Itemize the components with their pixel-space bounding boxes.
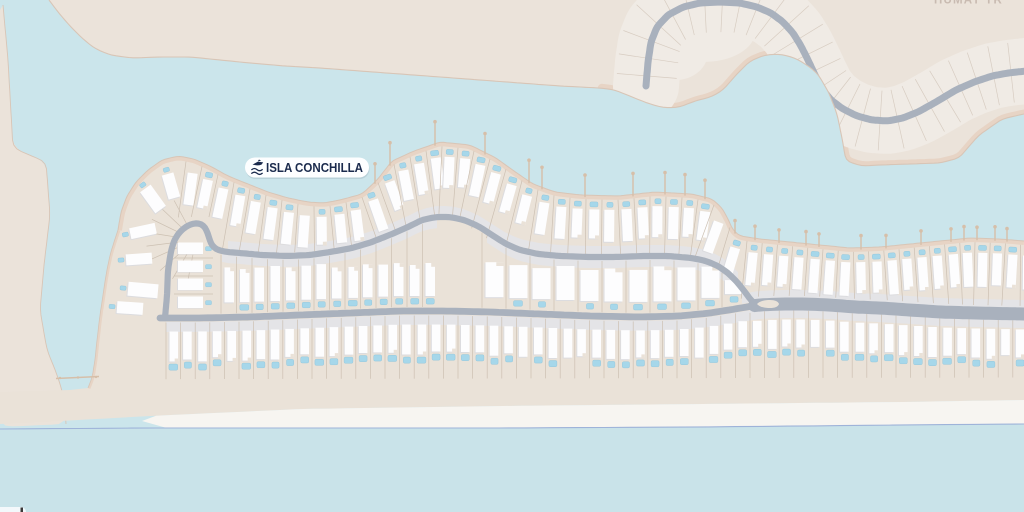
svg-text:ISLA CONCHILLA: ISLA CONCHILLA — [266, 161, 363, 175]
svg-text:HUMAY TR: HUMAY TR — [934, 0, 1003, 7]
